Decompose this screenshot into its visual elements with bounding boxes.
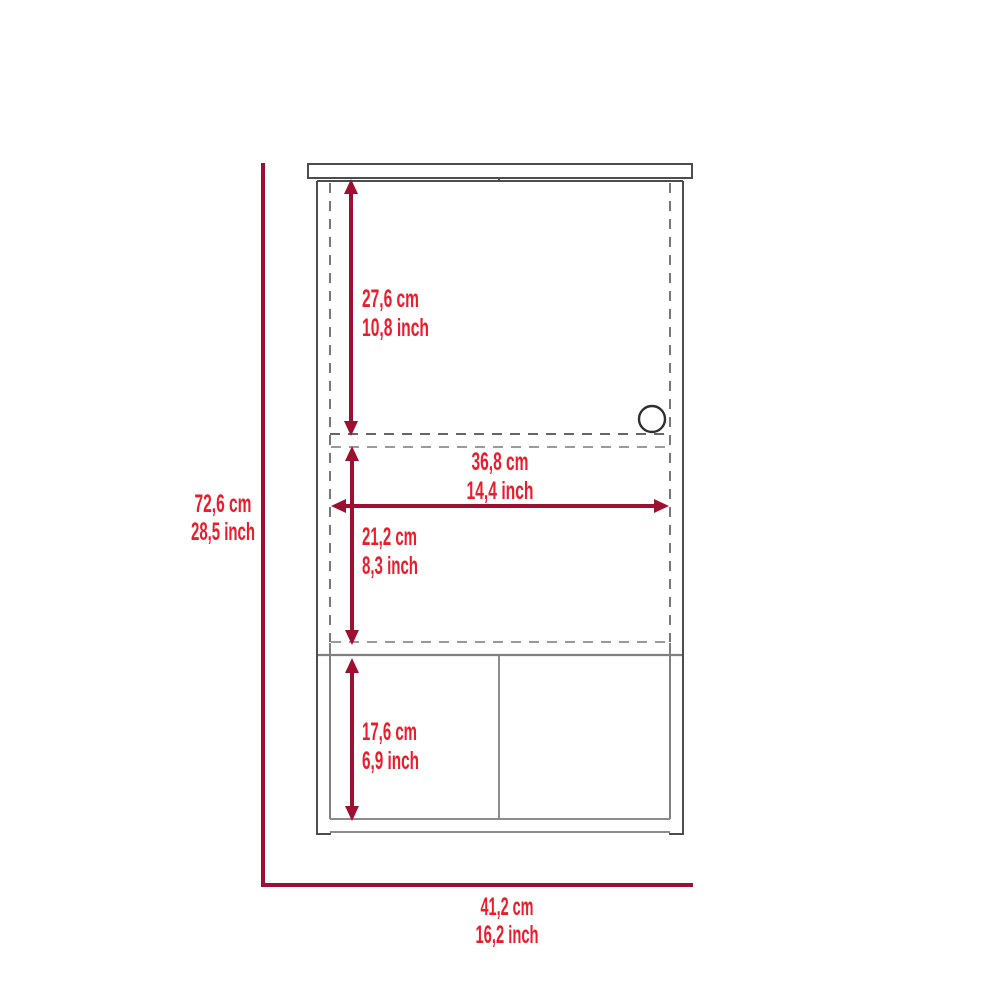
door-handle-icon — [639, 406, 665, 432]
overall-width-label-cm: 41,2 cm — [481, 893, 534, 921]
diagram-svg: 27,6 cm 10,8 inch 36,8 cm 14,4 inch 21,2… — [0, 0, 1000, 1000]
dimension-lines — [263, 163, 693, 885]
overall-height-label-cm: 72,6 cm — [195, 490, 252, 518]
overall-width-label-inch: 16,2 inch — [476, 921, 539, 949]
inner-width-arrowhead-right — [654, 499, 669, 513]
dimension-diagram: 27,6 cm 10,8 inch 36,8 cm 14,4 inch 21,2… — [0, 0, 1000, 1000]
door-height-label-cm: 27,6 cm — [362, 285, 419, 313]
middle-height-label-inch: 8,3 inch — [362, 552, 418, 580]
door-height-label-inch: 10,8 inch — [362, 314, 429, 342]
bottom-height-label-inch: 6,9 inch — [362, 747, 419, 775]
bottom-height-arrowhead-up — [345, 658, 359, 673]
middle-height-arrowhead-up — [345, 446, 359, 461]
dimension-labels: 27,6 cm 10,8 inch 36,8 cm 14,4 inch 21,2… — [191, 285, 539, 949]
middle-height-label-cm: 21,2 cm — [362, 523, 417, 551]
inner-width-label-cm: 36,8 cm — [472, 448, 529, 476]
inner-width-label-inch: 14,4 inch — [467, 477, 534, 505]
overall-extent-line — [263, 163, 693, 885]
inner-width-arrowhead-left — [331, 499, 346, 513]
overall-height-label-inch: 28,5 inch — [191, 518, 255, 546]
bottom-height-label-cm: 17,6 cm — [362, 718, 417, 746]
cabinet-top-board — [308, 164, 692, 178]
